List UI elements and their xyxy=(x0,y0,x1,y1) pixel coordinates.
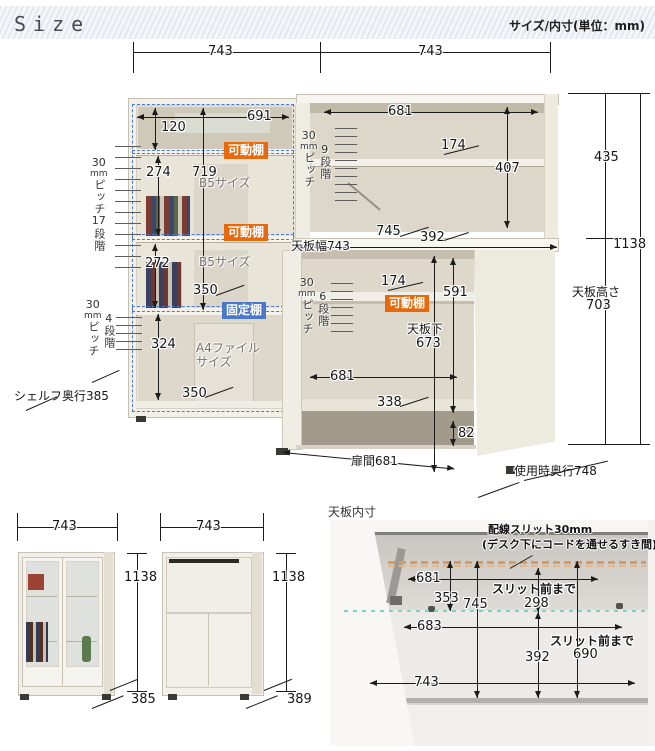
unit-note: サイズ/内寸(単位：mm) xyxy=(509,17,645,34)
dim-label-392: 392 xyxy=(420,231,445,245)
size-diagram-page: Size サイズ/内寸(単位：mm) 743 743 可動棚 xyxy=(0,0,655,751)
dim-label-tenban-shita: 天板下 xyxy=(407,323,443,336)
dim-tick xyxy=(276,553,296,554)
dim-label-745-photo: 745 xyxy=(463,598,488,612)
dim-label-683: 683 xyxy=(417,620,442,634)
pitch-num: 30 xyxy=(86,299,100,311)
movable-shelf-badge: 可動棚 xyxy=(224,142,268,159)
books xyxy=(26,622,48,662)
leader-line xyxy=(92,370,120,383)
dim-label-407: 407 xyxy=(495,162,520,176)
a4-line1: A4ファイル xyxy=(196,341,260,355)
screw xyxy=(616,603,623,609)
pitch-steps: 6 xyxy=(319,291,326,303)
dim-arrow-82 xyxy=(453,421,454,446)
pitch-unit: mm xyxy=(298,289,316,299)
pitch-9-label: 30 mm ピッチ 9 段階 xyxy=(300,130,331,188)
dim-label-298: 298 xyxy=(524,597,549,611)
dim-tick xyxy=(17,513,18,541)
dim-label-82: 82 xyxy=(458,427,475,441)
dim-label-591: 591 xyxy=(443,286,468,300)
dim-label-350-mid: 350 xyxy=(193,284,218,298)
green-vase xyxy=(82,636,91,662)
dim-label-width-right: 743 xyxy=(418,45,443,59)
cabinet2-flap xyxy=(166,557,252,613)
tenban-inner-title: 天板内寸 xyxy=(328,503,376,520)
pitch-4-label: 30 mm ピッチ 4 段階 xyxy=(84,299,115,357)
pitch-steps: 17 xyxy=(92,215,106,227)
leader-line xyxy=(478,482,520,498)
pitch-unit: mm xyxy=(90,169,108,179)
dim-tick xyxy=(263,513,264,541)
dim-label-338: 338 xyxy=(377,396,402,410)
slit-note-line1: 配線スリット30mm xyxy=(488,523,592,536)
dim-label-703: 703 xyxy=(586,299,611,313)
main-diagram: 743 743 可動棚 可動棚 固定棚 691 120 719 xyxy=(0,40,655,500)
dim-line-top-width xyxy=(133,52,550,53)
dim-label-691: 691 xyxy=(247,110,272,124)
pitch-word: ピッチ xyxy=(301,299,313,335)
dim-label-width-left: 743 xyxy=(208,45,233,59)
pitch-ticks xyxy=(115,146,141,270)
slit-front-label-lower: スリット前まで xyxy=(550,635,634,648)
hinge-cap xyxy=(390,596,402,605)
pitch-word: ピッチ xyxy=(87,321,99,357)
pitch-unit: mm xyxy=(300,142,318,152)
dim-label-274: 274 xyxy=(146,166,171,180)
hutch-right-panel xyxy=(544,94,558,240)
desk-top-photo: 配線スリット30mm (デスク下にコードを通せるすき間) 681 353 745… xyxy=(330,520,655,746)
a4-line2: サイズ xyxy=(196,355,232,369)
door-seam xyxy=(208,613,209,686)
right-wall-sliver xyxy=(648,520,655,746)
dim-label-desk-width: 天板幅743 xyxy=(291,240,350,253)
leader-line xyxy=(264,679,292,691)
flap-handle xyxy=(169,559,239,563)
dim-tick xyxy=(568,444,650,445)
dim-line-435-703 xyxy=(605,93,606,444)
dim-arrow-690 xyxy=(577,561,578,698)
foot xyxy=(102,694,111,700)
dim-label-681-under: 681 xyxy=(330,370,355,384)
dim-tick xyxy=(133,42,134,73)
foot xyxy=(240,694,249,700)
cabinet2-side xyxy=(252,552,262,694)
dim-arrow-673 xyxy=(434,256,435,472)
pitch-steps: 4 xyxy=(105,313,112,325)
dim-label-745: 745 xyxy=(376,225,401,239)
shelf-depth-label: シェルフ奥行385 xyxy=(14,390,109,403)
pitch-ticks xyxy=(116,317,142,351)
dim-label-673: 673 xyxy=(416,337,441,351)
dim-line-1138 xyxy=(640,93,641,444)
dim-label-392-photo: 392 xyxy=(525,651,550,665)
foot xyxy=(20,694,29,700)
dim-label-353: 353 xyxy=(434,592,459,606)
dim-label-681-slit: 681 xyxy=(416,572,441,586)
shelf-line xyxy=(26,596,57,597)
dim-tick xyxy=(550,42,551,73)
pitch-steps: 9 xyxy=(321,144,328,156)
movable-shelf-badge: 可動棚 xyxy=(385,295,429,312)
shelf-zone-box xyxy=(132,150,294,240)
cable-slit-line xyxy=(388,565,646,567)
dim-arrow-591 xyxy=(453,258,454,413)
dim-tick xyxy=(117,513,118,541)
dim-tick xyxy=(127,553,147,554)
foot xyxy=(136,416,146,422)
dim-label-681-hutch: 681 xyxy=(388,105,413,119)
dim-arrow-745 xyxy=(477,561,478,698)
movable-shelf-badge: 可動棚 xyxy=(224,224,268,241)
pitch-17-label: 30 mm ピッチ 17 段階 xyxy=(90,157,108,252)
pitch-unit: mm xyxy=(84,311,102,321)
bottom-left-cabinets: 743 1138 385 743 xyxy=(0,500,320,751)
dim-tick xyxy=(320,42,321,73)
leader-line xyxy=(246,695,278,709)
dim-tick xyxy=(160,513,161,541)
dim-label-690: 690 xyxy=(573,648,598,662)
cab2-depth-label: 389 xyxy=(287,693,312,707)
pitch-num: 30 xyxy=(302,130,316,142)
pitch-num: 30 xyxy=(300,277,314,289)
desk-right-panel xyxy=(474,250,555,456)
page-title: Size xyxy=(14,12,90,36)
dim-label-1138: 1138 xyxy=(613,238,646,252)
pitch-dan: 段階 xyxy=(93,228,105,252)
foot xyxy=(168,694,177,700)
pitch-ticks xyxy=(335,128,357,202)
cab2-width-label: 743 xyxy=(196,520,221,534)
cab1-depth-label: 385 xyxy=(131,693,156,707)
fixed-shelf-badge: 固定棚 xyxy=(222,302,266,319)
dim-label-324: 324 xyxy=(151,338,176,352)
pitch-dan: 段階 xyxy=(317,303,329,327)
dim-label-272: 272 xyxy=(145,257,170,271)
dim-label-120: 120 xyxy=(161,121,186,135)
pitch-num: 30 xyxy=(92,157,106,169)
cabinet2-doors xyxy=(166,613,252,688)
dim-label-435: 435 xyxy=(594,151,619,165)
base-gap-shadow xyxy=(302,411,474,445)
a4-size-label: A4ファイルサイズ xyxy=(196,341,260,370)
dim-arrow-120 xyxy=(155,108,156,150)
dim-arrow-272 xyxy=(155,244,156,308)
b5-size-label: B5サイズ xyxy=(199,176,251,190)
pitch-ticks xyxy=(331,283,353,333)
b5-size-label: B5サイズ xyxy=(199,255,251,269)
slit-note-line2: (デスク下にコードを通せるすき間) xyxy=(482,538,655,551)
cab1-height-label: 1138 xyxy=(124,571,157,585)
dim-arrow-719 xyxy=(203,108,204,310)
dim-label-350-bottom: 350 xyxy=(182,387,207,401)
slit-front-label-upper: スリット前まで xyxy=(492,583,576,596)
dim-label-743-photo: 743 xyxy=(414,676,439,690)
cab1-width-label: 743 xyxy=(52,520,77,534)
dim-tick xyxy=(568,93,650,94)
dim-arrow-324 xyxy=(158,314,159,400)
red-boxes xyxy=(28,574,44,590)
pitch-word: ピッチ xyxy=(303,152,315,188)
pitch-dan: 段階 xyxy=(103,325,115,349)
dim-arrow-743-photo xyxy=(370,683,635,684)
pitch-6-label: 30 mm ピッチ 6 段階 xyxy=(298,277,329,335)
dim-label-door-gap: 扉間681 xyxy=(351,455,398,468)
shelf-line xyxy=(66,596,97,597)
teal-dotted-line xyxy=(344,610,650,612)
dim-label-desk-height-word: 天板高さ xyxy=(572,286,620,299)
pitch-word: ピッチ xyxy=(93,179,105,215)
pitch-dan: 段階 xyxy=(319,156,331,180)
cabinet1-side xyxy=(104,552,113,694)
cab2-height-label: 1138 xyxy=(272,571,305,585)
